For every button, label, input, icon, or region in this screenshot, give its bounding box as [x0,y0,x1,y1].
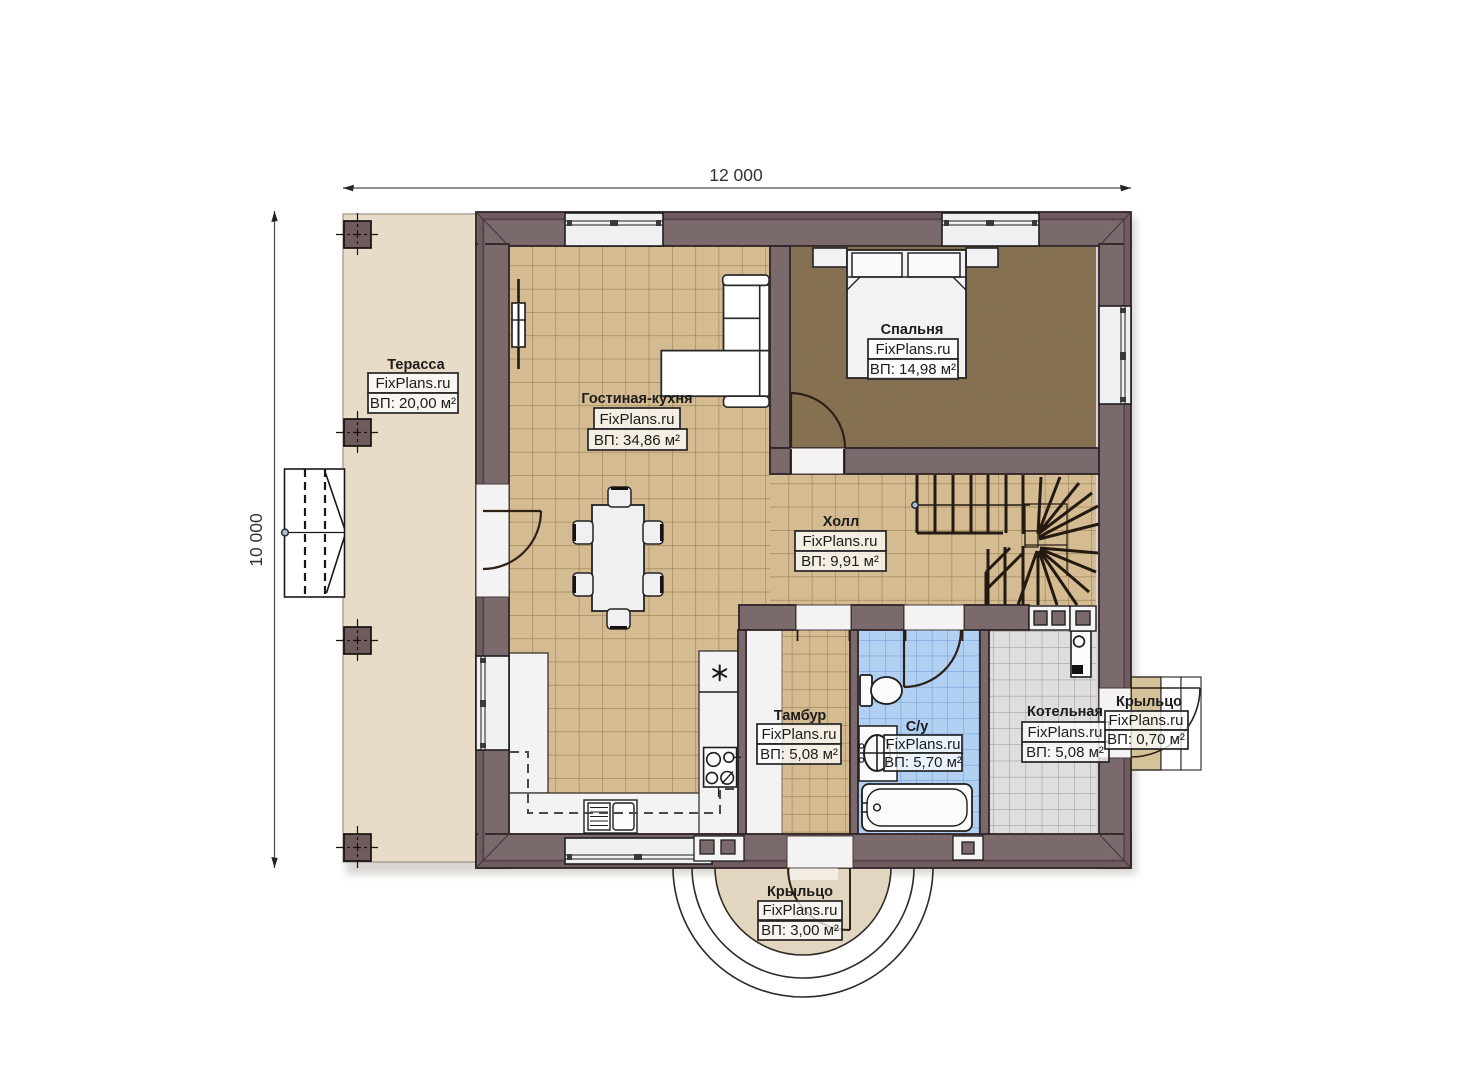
svg-text:FixPlans.ru: FixPlans.ru [375,375,450,392]
svg-text:Крыльцо: Крыльцо [767,884,833,900]
svg-text:FixPlans.ru: FixPlans.ru [885,736,960,753]
svg-text:Крыльцо: Крыльцо [1116,694,1182,710]
svg-text:ВП: 5,08 м²: ВП: 5,08 м² [1026,744,1104,761]
svg-text:FixPlans.ru: FixPlans.ru [875,341,950,358]
svg-text:С/у: С/у [906,719,929,735]
svg-text:ВП: 5,08 м²: ВП: 5,08 м² [760,746,838,763]
svg-text:10 000: 10 000 [246,513,266,567]
svg-text:ВП: 0,70 м²: ВП: 0,70 м² [1107,731,1185,748]
svg-text:Гостиная-кухня: Гостиная-кухня [581,391,692,407]
svg-text:Холл: Холл [823,514,859,530]
svg-text:ВП: 20,00 м²: ВП: 20,00 м² [370,395,456,412]
svg-text:FixPlans.ru: FixPlans.ru [599,411,674,428]
svg-text:ВП: 3,00 м²: ВП: 3,00 м² [761,922,839,939]
svg-text:ВП: 9,91 м²: ВП: 9,91 м² [801,553,879,570]
svg-text:FixPlans.ru: FixPlans.ru [761,726,836,743]
svg-text:FixPlans.ru: FixPlans.ru [1108,712,1183,729]
svg-text:ВП: 14,98 м²: ВП: 14,98 м² [870,361,956,378]
svg-text:12 000: 12 000 [709,165,763,185]
svg-text:ВП: 34,86 м²: ВП: 34,86 м² [594,432,680,449]
svg-text:FixPlans.ru: FixPlans.ru [802,533,877,550]
svg-text:Тамбур: Тамбур [774,708,827,724]
svg-text:FixPlans.ru: FixPlans.ru [762,902,837,919]
svg-text:Терасса: Терасса [387,357,445,373]
svg-text:Котельная: Котельная [1027,704,1103,720]
svg-text:ВП: 5,70 м²: ВП: 5,70 м² [884,754,962,771]
svg-text:Спальня: Спальня [881,322,944,338]
svg-text:FixPlans.ru: FixPlans.ru [1027,724,1102,741]
